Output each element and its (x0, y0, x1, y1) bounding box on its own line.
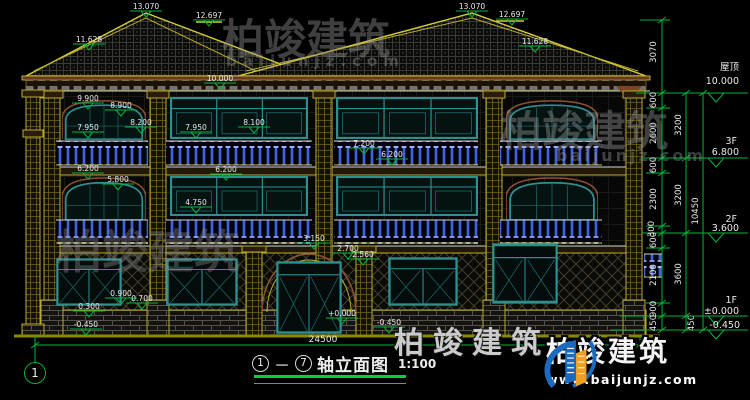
elevation-marker: 12.697 (193, 11, 225, 26)
svg-text:5.800: 5.800 (107, 175, 129, 184)
dim-label: 2300 (649, 188, 659, 210)
svg-text:9.900: 9.900 (77, 94, 99, 103)
dim-label: 450 (649, 315, 659, 331)
porch-column (22, 90, 44, 336)
dim-label: 600 (649, 92, 659, 108)
dim-label: 450 (687, 315, 697, 331)
title-axis-end: 7 (295, 355, 312, 372)
svg-text:6.200: 6.200 (381, 150, 403, 159)
svg-text:12.697: 12.697 (499, 10, 525, 19)
level-name: 3F (725, 136, 737, 147)
entrance-porch (242, 246, 376, 337)
svg-text:11.628: 11.628 (522, 37, 548, 46)
title-name: 轴立面图 (317, 351, 389, 376)
entrance-door (277, 262, 341, 333)
level-elevation: 10.000 (706, 76, 739, 87)
drawing-title: 1 － 7 轴立面图 1:100 (252, 351, 436, 376)
brand-logo-icon (542, 330, 600, 392)
svg-text:13.070: 13.070 (133, 2, 159, 11)
title-dash: － (274, 352, 290, 376)
svg-text:6.200: 6.200 (215, 165, 237, 174)
level-elevation: 6.800 (712, 147, 739, 158)
svg-text:7.950: 7.950 (185, 123, 207, 132)
cad-elevation-canvas: 13.070 12.697 11.628 10.000 13.070 12.69… (0, 0, 750, 400)
dim-label: 2600 (649, 122, 659, 144)
svg-text:6.200: 6.200 (77, 164, 99, 173)
level-elevation: ±0.000 (704, 306, 739, 317)
dim-label: 600 (649, 232, 659, 248)
svg-text:4.750: 4.750 (185, 198, 207, 207)
svg-text:2.560: 2.560 (352, 250, 374, 259)
svg-text:0.900: 0.900 (110, 289, 132, 298)
hip-roof (26, 13, 646, 76)
title-axis-start: 1 (252, 355, 269, 372)
svg-text:-0.450: -0.450 (377, 318, 401, 327)
svg-text:12.697: 12.697 (196, 11, 222, 20)
svg-text:7.200: 7.200 (353, 139, 375, 148)
svg-text:8.200: 8.200 (130, 118, 152, 127)
total-width-dim: 24500 (309, 335, 338, 345)
level-name: 屋顶 (720, 62, 740, 73)
branding-block[interactable]: 柏竣建筑 www.baijunjz.com (542, 330, 698, 387)
svg-text:0.700: 0.700 (131, 294, 153, 303)
svg-text:3.150: 3.150 (303, 234, 325, 243)
eave-cornice (22, 76, 650, 94)
svg-text:7.950: 7.950 (77, 123, 99, 132)
svg-text:8.900: 8.900 (110, 101, 132, 110)
dim-label: 10450 (691, 197, 701, 224)
dim-label: 3070 (649, 41, 659, 63)
svg-text:10.000: 10.000 (207, 74, 233, 83)
title-underline (254, 375, 406, 384)
svg-text:11.628: 11.628 (76, 35, 102, 44)
axis-bubble-number: 1 (31, 366, 39, 380)
level-elevation: 3.600 (712, 223, 739, 234)
svg-text:-0.450: -0.450 (74, 320, 98, 329)
svg-text:+0.000: +0.000 (328, 309, 356, 318)
dim-label: 3200 (674, 114, 684, 136)
title-scale: 1:100 (398, 357, 436, 371)
dim-label: 3600 (674, 263, 684, 285)
svg-text:0.300: 0.300 (78, 302, 100, 311)
dim-label: 600 (649, 157, 659, 173)
dim-label: 2100 (649, 264, 659, 286)
dim-label: 3200 (674, 184, 684, 206)
svg-text:13.070: 13.070 (459, 2, 485, 11)
svg-text:8.100: 8.100 (243, 118, 265, 127)
level-name: 1F (725, 295, 737, 306)
dim-label: 900 (649, 301, 659, 317)
level-elevation: -0.450 (709, 320, 740, 331)
